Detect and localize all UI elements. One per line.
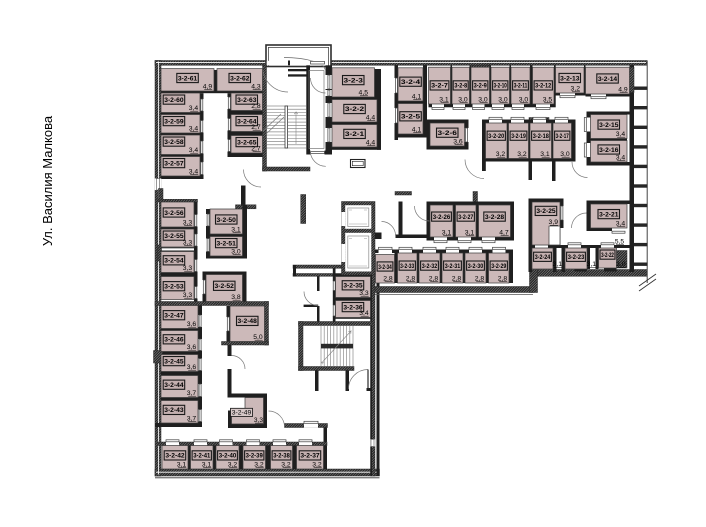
svg-text:3-2-12: 3-2-12	[535, 83, 551, 90]
svg-text:3-2-7: 3-2-7	[431, 83, 448, 90]
svg-text:3,0: 3,0	[478, 96, 488, 103]
svg-text:3-2-28: 3-2-28	[485, 214, 505, 221]
svg-text:2,8: 2,8	[383, 275, 393, 282]
svg-text:4,9: 4,9	[203, 83, 213, 90]
svg-text:3,4: 3,4	[616, 131, 626, 138]
svg-text:3,2: 3,2	[254, 461, 264, 468]
svg-text:5,0: 5,0	[253, 334, 263, 341]
svg-text:3-2-13: 3-2-13	[560, 75, 580, 82]
svg-text:3-2-57: 3-2-57	[164, 160, 184, 167]
svg-text:3-2-14: 3-2-14	[598, 76, 618, 83]
svg-text:3,3: 3,3	[254, 417, 263, 424]
svg-text:3-2-25: 3-2-25	[536, 208, 556, 215]
svg-text:3,4: 3,4	[616, 154, 626, 161]
svg-text:3-2-5: 3-2-5	[401, 114, 421, 121]
svg-text:3-2-62: 3-2-62	[230, 75, 250, 82]
svg-text:3-2-55: 3-2-55	[164, 233, 184, 240]
svg-text:3-2-19: 3-2-19	[511, 133, 526, 140]
svg-text:4,1: 4,1	[412, 93, 422, 100]
svg-text:3-2-54: 3-2-54	[164, 258, 184, 265]
svg-text:3-2-45: 3-2-45	[164, 358, 184, 365]
svg-text:3,2: 3,2	[312, 461, 322, 468]
svg-text:3-2-41: 3-2-41	[193, 453, 211, 460]
svg-text:3-2-18: 3-2-18	[533, 133, 549, 140]
svg-text:3,1: 3,1	[177, 461, 187, 468]
svg-text:4,3: 4,3	[251, 83, 261, 90]
svg-text:3,1: 3,1	[202, 461, 212, 468]
svg-text:3-2-23: 3-2-23	[568, 254, 585, 261]
svg-text:3-2-47: 3-2-47	[164, 313, 184, 320]
svg-text:3,4: 3,4	[189, 125, 199, 132]
svg-text:3-2-51: 3-2-51	[217, 240, 237, 247]
svg-text:3-2-11: 3-2-11	[514, 83, 528, 90]
svg-text:3-2-26: 3-2-26	[433, 214, 451, 221]
svg-text:3,1: 3,1	[540, 151, 550, 158]
svg-text:2,8: 2,8	[251, 103, 261, 110]
svg-text:2,7: 2,7	[251, 145, 261, 152]
svg-text:3-2-32: 3-2-32	[422, 263, 438, 270]
svg-text:Ул. Василия Малкова: Ул. Василия Малкова	[40, 115, 55, 246]
svg-text:3-2-44: 3-2-44	[164, 382, 184, 389]
svg-text:3,0: 3,0	[616, 261, 626, 268]
svg-text:3-2-34: 3-2-34	[378, 264, 392, 271]
svg-text:3-2-40: 3-2-40	[219, 453, 237, 460]
svg-text:3-2-3: 3-2-3	[344, 77, 364, 84]
svg-text:2,8: 2,8	[475, 275, 485, 282]
svg-text:2,8: 2,8	[406, 275, 416, 282]
svg-text:3-2-38: 3-2-38	[273, 453, 290, 460]
svg-text:3-2-39: 3-2-39	[246, 453, 264, 460]
svg-text:3,0: 3,0	[231, 248, 241, 255]
svg-text:3,8: 3,8	[231, 294, 241, 301]
svg-text:3,4: 3,4	[189, 147, 199, 154]
svg-text:4,9: 4,9	[618, 86, 628, 93]
svg-text:3-2-17: 3-2-17	[556, 133, 569, 140]
svg-text:4,7: 4,7	[499, 229, 509, 236]
svg-text:3,3: 3,3	[359, 290, 369, 297]
svg-text:3,3: 3,3	[183, 239, 193, 246]
svg-text:3,4: 3,4	[189, 168, 199, 175]
svg-text:3-2-15: 3-2-15	[599, 122, 619, 129]
svg-text:3,1: 3,1	[231, 226, 241, 233]
svg-text:3,7: 3,7	[187, 415, 197, 422]
svg-text:3-2-1: 3-2-1	[345, 131, 365, 138]
svg-text:3,6: 3,6	[187, 364, 197, 371]
svg-text:3,1: 3,1	[587, 261, 597, 268]
svg-text:3-2-59: 3-2-59	[164, 118, 184, 125]
svg-text:2,8: 2,8	[452, 275, 462, 282]
svg-text:4,4: 4,4	[366, 114, 376, 121]
svg-text:3,2: 3,2	[281, 461, 291, 468]
svg-text:3,0: 3,0	[519, 96, 529, 103]
svg-text:2,8: 2,8	[498, 275, 508, 282]
svg-text:2,7: 2,7	[251, 124, 261, 131]
svg-text:3-2-20: 3-2-20	[488, 133, 504, 140]
svg-text:3-2-4: 3-2-4	[401, 79, 421, 86]
svg-text:3,1: 3,1	[553, 261, 563, 268]
svg-text:3,2: 3,2	[496, 151, 506, 158]
svg-text:3,7: 3,7	[187, 390, 197, 397]
svg-text:3,0: 3,0	[458, 96, 468, 103]
svg-text:3-2-58: 3-2-58	[164, 139, 184, 146]
svg-text:3,3: 3,3	[183, 219, 193, 226]
svg-text:3-2-42: 3-2-42	[165, 453, 185, 460]
svg-text:3-2-53: 3-2-53	[164, 284, 184, 291]
svg-text:3-2-56: 3-2-56	[164, 210, 184, 217]
svg-text:3,5: 3,5	[543, 96, 553, 103]
svg-text:3,1: 3,1	[442, 229, 452, 236]
svg-text:3-2-61: 3-2-61	[178, 75, 198, 82]
svg-text:3-2-37: 3-2-37	[300, 453, 320, 460]
svg-text:3-2-50: 3-2-50	[217, 217, 237, 224]
svg-text:3,2: 3,2	[571, 86, 581, 93]
svg-text:3-2-27: 3-2-27	[458, 214, 473, 221]
svg-text:3-2-30: 3-2-30	[468, 263, 484, 270]
svg-text:3,6: 3,6	[187, 344, 197, 351]
svg-text:3-2-29: 3-2-29	[491, 263, 506, 270]
svg-text:4,1: 4,1	[412, 126, 422, 133]
svg-text:3,3: 3,3	[183, 265, 193, 272]
svg-text:5,5: 5,5	[615, 239, 624, 246]
svg-text:3-2-48: 3-2-48	[238, 318, 258, 325]
svg-text:4,5: 4,5	[359, 90, 369, 97]
svg-text:3,0: 3,0	[498, 96, 508, 103]
svg-text:3,0: 3,0	[560, 151, 570, 158]
svg-text:3,1: 3,1	[465, 229, 475, 236]
svg-text:3,2: 3,2	[228, 461, 238, 468]
svg-text:3-2-46: 3-2-46	[164, 337, 184, 344]
svg-text:3,1: 3,1	[439, 96, 449, 103]
svg-text:3,9: 3,9	[549, 219, 559, 226]
svg-text:3-2-8: 3-2-8	[454, 83, 467, 90]
svg-text:3-2-10: 3-2-10	[494, 83, 507, 90]
svg-text:3,4: 3,4	[359, 310, 369, 317]
svg-text:3,4: 3,4	[189, 105, 199, 112]
svg-text:3,4: 3,4	[616, 220, 626, 227]
svg-text:3-2-21: 3-2-21	[599, 211, 619, 218]
svg-text:3,6: 3,6	[453, 138, 463, 145]
svg-text:3,3: 3,3	[183, 292, 193, 299]
svg-text:3-2-60: 3-2-60	[164, 97, 184, 104]
svg-text:3-2-43: 3-2-43	[164, 407, 184, 414]
svg-text:3-2-6: 3-2-6	[438, 130, 458, 137]
svg-text:3,6: 3,6	[187, 321, 197, 328]
svg-text:3-2-9: 3-2-9	[474, 83, 487, 90]
svg-text:3-2-24: 3-2-24	[535, 254, 551, 261]
svg-text:3-2-52: 3-2-52	[215, 283, 235, 290]
svg-text:3-2-33: 3-2-33	[400, 263, 414, 270]
svg-text:4,4: 4,4	[366, 139, 376, 146]
svg-text:3,2: 3,2	[517, 151, 527, 158]
svg-text:3-2-2: 3-2-2	[345, 106, 365, 113]
svg-text:3-2-31: 3-2-31	[445, 263, 461, 270]
svg-text:2,8: 2,8	[429, 275, 439, 282]
svg-text:3-2-16: 3-2-16	[599, 147, 619, 154]
svg-text:3-2-22: 3-2-22	[601, 252, 614, 259]
svg-text:3-2-35: 3-2-35	[343, 283, 363, 290]
svg-text:3-2-49: 3-2-49	[232, 411, 252, 417]
